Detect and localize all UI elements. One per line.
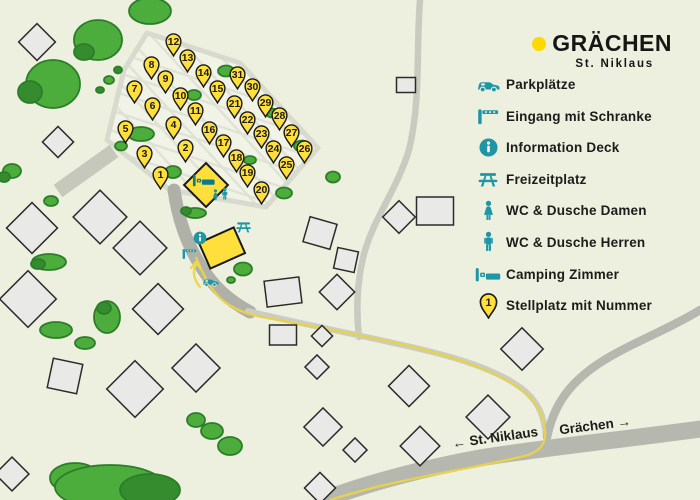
svg-text:20: 20 (255, 185, 267, 196)
legend-label: Camping Zimmer (506, 267, 619, 282)
map-pin-7: 7 (125, 79, 144, 104)
legend-item-freizeitplatz: Freizeitplatz (470, 167, 696, 192)
svg-text:1: 1 (157, 170, 163, 181)
picnic-icon (470, 170, 506, 189)
logo: GRÄCHEN St. Niklaus (532, 30, 672, 70)
legend-label: WC & Dusche Herren (506, 235, 645, 250)
map-pin-16: 16 (200, 120, 219, 145)
map-pin-4: 4 (164, 115, 183, 140)
map-pin-26: 26 (295, 139, 314, 164)
svg-text:5: 5 (122, 124, 128, 135)
map-pin-18: 18 (227, 148, 246, 173)
map-pin-20: 20 (252, 180, 271, 205)
svg-text:22: 22 (241, 115, 253, 126)
car-icon (470, 76, 506, 94)
svg-text:8: 8 (148, 60, 154, 71)
map-pin-21: 21 (225, 94, 244, 119)
svg-text:21: 21 (228, 99, 240, 110)
map-pin-17: 17 (214, 133, 233, 158)
map-pin-5: 5 (116, 119, 135, 144)
legend-item-wc-herren: WC & Dusche Herren (470, 230, 696, 255)
svg-text:26: 26 (298, 144, 310, 155)
svg-text:19: 19 (241, 168, 253, 179)
map-pin-22: 22 (238, 110, 257, 135)
legend-label: Parkplätze (506, 77, 576, 92)
legend: Parkplätze Eingang mit Schranke Informat… (470, 72, 696, 325)
map-pin-9: 9 (156, 69, 175, 94)
barrier-icon (470, 107, 506, 126)
svg-text:6: 6 (149, 101, 155, 112)
logo-dot-icon (532, 37, 546, 51)
wc-men-icon (470, 231, 506, 253)
legend-label: Freizeitplatz (506, 172, 587, 187)
bed-icon (470, 266, 506, 283)
svg-text:7: 7 (131, 84, 137, 95)
map-pin-12: 12 (164, 32, 183, 57)
map-pin-3: 3 (135, 144, 154, 169)
wc-women-icon (470, 200, 506, 222)
map-pin-1: 1 (151, 165, 170, 190)
svg-text:13: 13 (181, 53, 193, 64)
legend-item-stellplatz: 1 Stellplatz mit Nummer (470, 293, 696, 318)
svg-text:16: 16 (203, 125, 215, 136)
svg-text:14: 14 (197, 68, 209, 79)
map-pin-28: 28 (270, 106, 289, 131)
map-pin-23: 23 (252, 124, 271, 149)
legend-item-parkplaetze: Parkplätze (470, 72, 696, 97)
logo-subtitle: St. Niklaus (575, 58, 654, 70)
svg-text:25: 25 (280, 160, 292, 171)
svg-text:29: 29 (259, 98, 271, 109)
svg-text:23: 23 (255, 129, 267, 140)
svg-text:12: 12 (167, 37, 179, 48)
legend-item-eingang: Eingang mit Schranke (470, 104, 696, 129)
legend-item-wc-damen: WC & Dusche Damen (470, 198, 696, 223)
map-pin-8: 8 (142, 55, 161, 80)
svg-text:2: 2 (182, 143, 188, 154)
svg-text:10: 10 (174, 91, 186, 102)
legend-pin-number: 1 (485, 297, 491, 309)
logo-name: GRÄCHEN (552, 30, 672, 57)
map-pin-25: 25 (277, 155, 296, 180)
map-pin-10: 10 (171, 86, 190, 111)
map-pin-29: 29 (256, 93, 275, 118)
map-pin-2: 2 (176, 138, 195, 163)
map-pin-19: 19 (238, 163, 257, 188)
legend-item-information: Information Deck (470, 135, 696, 160)
svg-text:18: 18 (230, 153, 242, 164)
svg-text:15: 15 (211, 84, 223, 95)
legend-label: WC & Dusche Damen (506, 203, 647, 218)
map-pin-15: 15 (208, 79, 227, 104)
map-pin-24: 24 (264, 139, 283, 164)
map-pin-30: 30 (243, 77, 262, 102)
legend-item-camping-zimmer: Camping Zimmer (470, 262, 696, 287)
map-pin-27: 27 (282, 123, 301, 148)
pin-icon: 1 (470, 292, 506, 319)
svg-text:30: 30 (246, 82, 258, 93)
svg-text:27: 27 (285, 128, 297, 139)
svg-text:11: 11 (189, 106, 200, 117)
map-pin-6: 6 (143, 96, 162, 121)
legend-label: Eingang mit Schranke (506, 109, 652, 124)
svg-text:4: 4 (170, 120, 176, 131)
svg-text:17: 17 (217, 138, 229, 149)
map-pin-13: 13 (178, 48, 197, 73)
map-pin-11: 11 (186, 101, 205, 126)
map-pin-14: 14 (194, 63, 213, 88)
svg-text:31: 31 (231, 70, 243, 81)
legend-label: Stellplatz mit Nummer (506, 298, 652, 313)
svg-text:3: 3 (141, 149, 147, 160)
info-icon (470, 137, 506, 158)
svg-text:9: 9 (162, 74, 168, 85)
svg-text:24: 24 (267, 144, 279, 155)
map-pin-31: 31 (228, 65, 247, 90)
svg-text:28: 28 (273, 111, 285, 122)
legend-label: Information Deck (506, 140, 619, 155)
